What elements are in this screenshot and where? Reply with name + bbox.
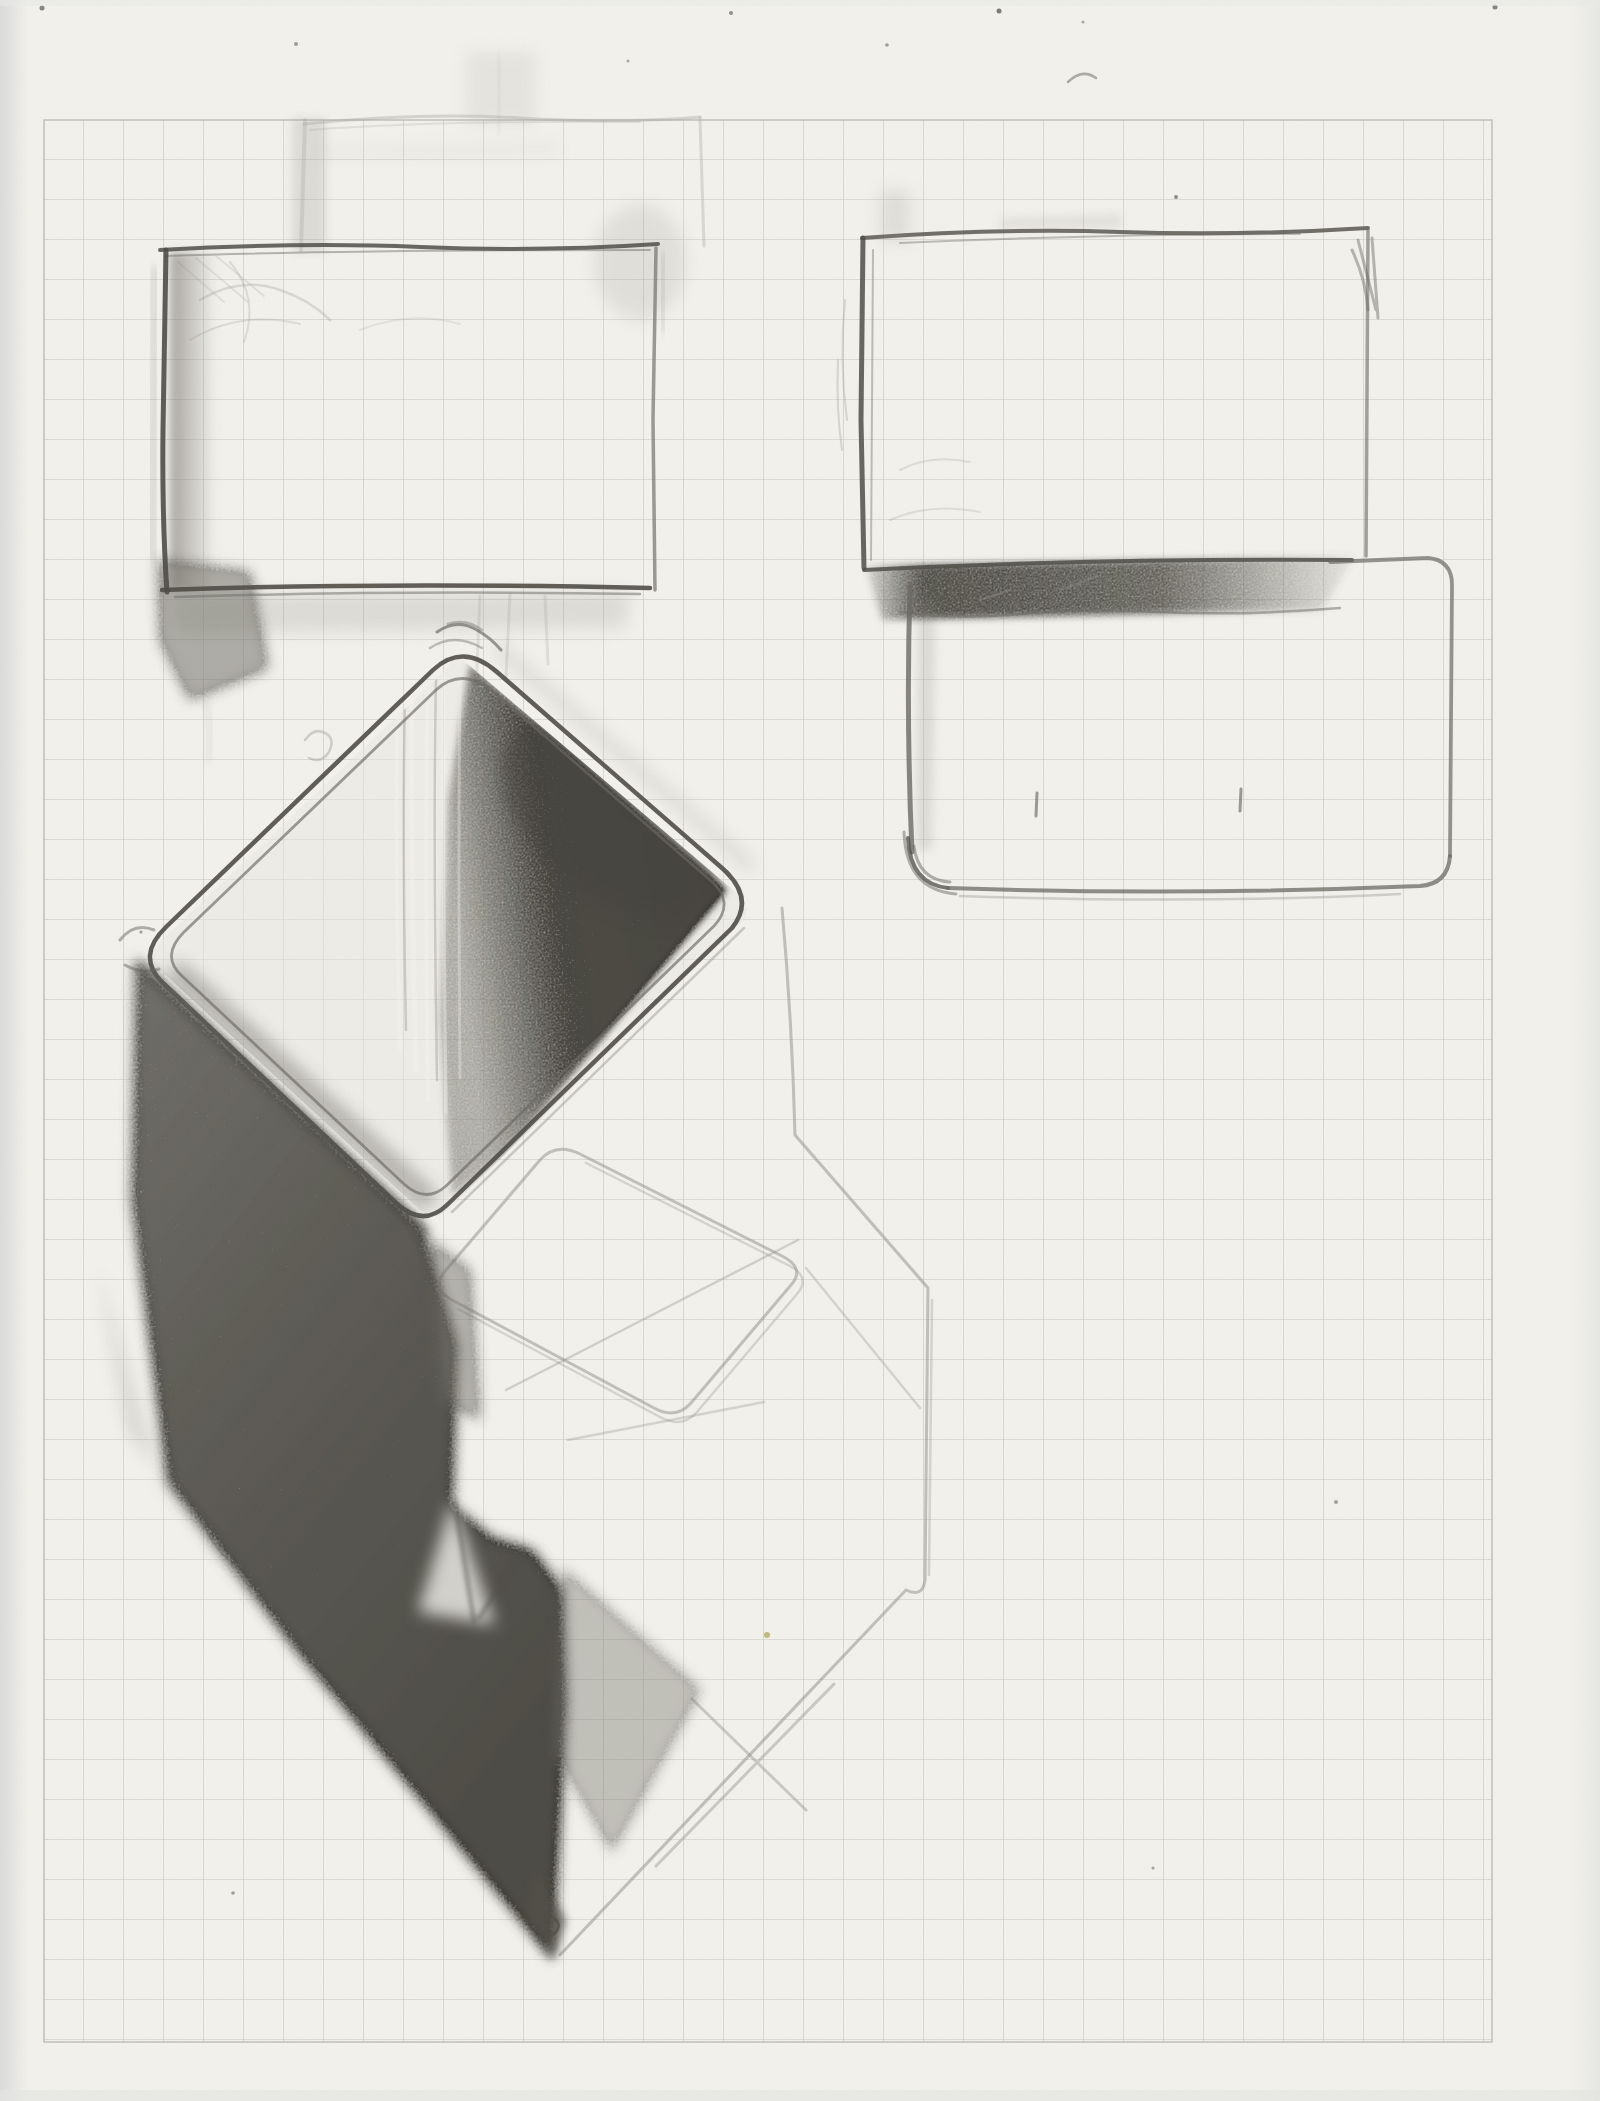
- top-scan-edge: [0, 0, 1600, 6]
- scanned-sketch-page: [0, 0, 1600, 2101]
- paper-grain: [0, 0, 1600, 2101]
- left-scan-edge: [0, 0, 28, 2101]
- bottom-scan-edge: [0, 2090, 1600, 2101]
- sketch-canvas: [0, 0, 1600, 2101]
- right-scan-edge: [1572, 0, 1600, 2101]
